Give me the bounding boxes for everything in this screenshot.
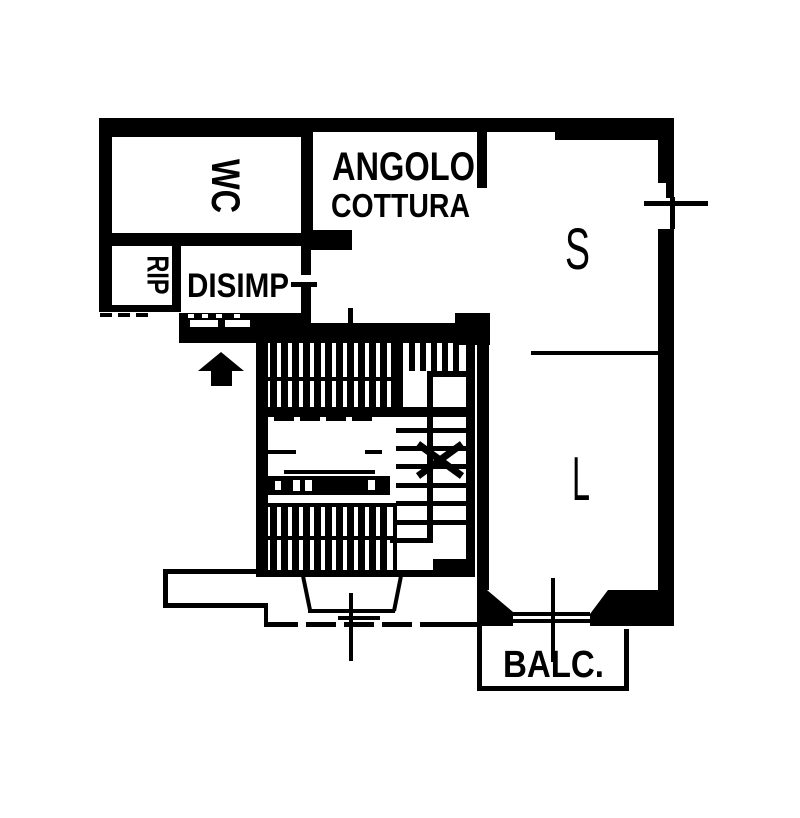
svg-text:DISIMP: DISIMP (187, 267, 289, 305)
svg-text:COTTURA: COTTURA (331, 187, 470, 224)
svg-text:L: L (572, 445, 590, 514)
svg-text:RIP: RIP (141, 256, 176, 295)
svg-text:S: S (565, 217, 590, 282)
svg-text:ANGOLO: ANGOLO (332, 145, 475, 189)
svg-text:BALC.: BALC. (503, 644, 604, 686)
svg-text:WC: WC (203, 159, 247, 213)
